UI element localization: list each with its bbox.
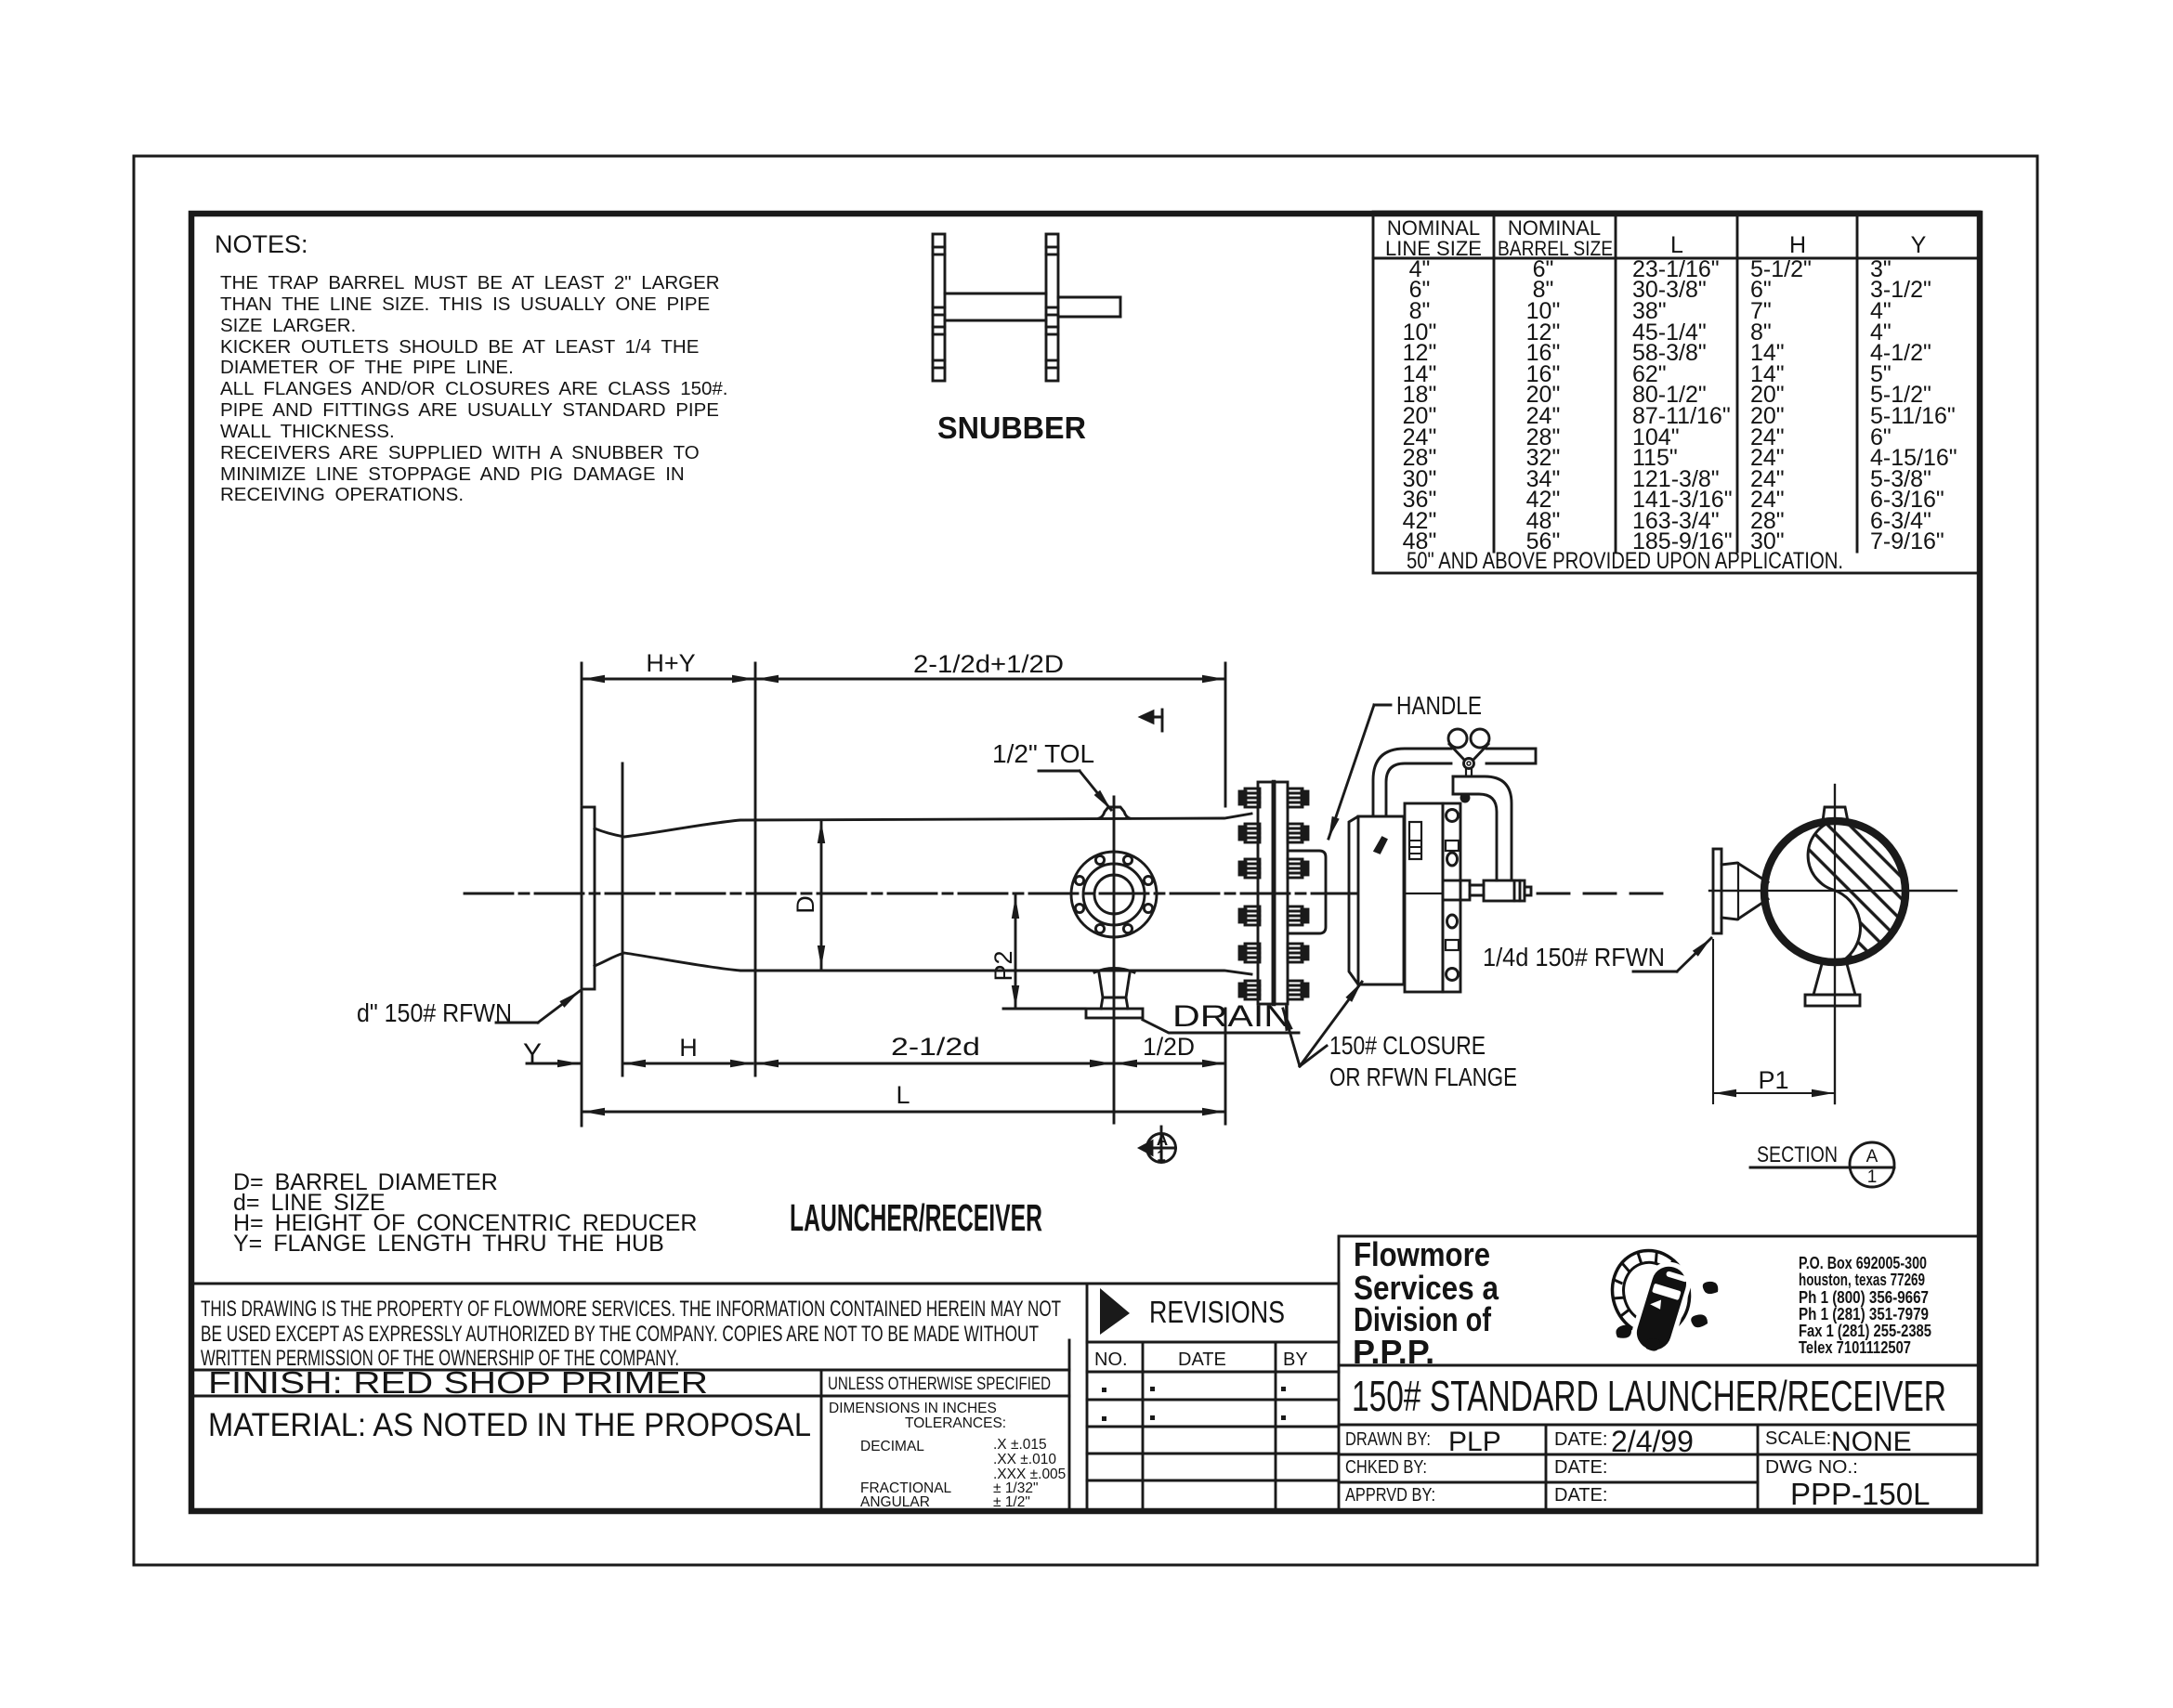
svg-text:Ph 1 (800) 356-9667: Ph 1 (800) 356-9667: [1799, 1288, 1929, 1307]
svg-text:.X ±.015: .X ±.015: [993, 1437, 1047, 1453]
svg-text:Y: Y: [1911, 232, 1927, 258]
svg-text:P2: P2: [989, 950, 1017, 981]
svg-text:P.P.P.: P.P.P.: [1353, 1333, 1434, 1371]
svg-text:Fax 1 (281) 255-2385: Fax 1 (281) 255-2385: [1799, 1322, 1931, 1340]
svg-text:OR RFWN FLANGE: OR RFWN FLANGE: [1329, 1063, 1517, 1091]
svg-text:RECEIVERS ARE SUPPLIED WITH A: RECEIVERS ARE SUPPLIED WITH A SNUBBER TO: [220, 442, 700, 463]
svg-text:ANGULAR: ANGULAR: [860, 1494, 930, 1510]
svg-text:DECIMAL: DECIMAL: [860, 1439, 924, 1454]
svg-text:BY: BY: [1283, 1349, 1308, 1370]
svg-text:ALL FLANGES AND/OR CLOSURES AR: ALL FLANGES AND/OR CLOSURES ARE CLASS 15…: [220, 378, 728, 399]
svg-text:SCALE:: SCALE:: [1765, 1428, 1831, 1449]
svg-text:PLP: PLP: [1448, 1427, 1501, 1457]
svg-text:2-1/2d+1/2D: 2-1/2d+1/2D: [913, 650, 1064, 678]
svg-text:BARREL SIZE: BARREL SIZE: [1498, 237, 1613, 260]
svg-text:LINE SIZE: LINE SIZE: [1385, 237, 1482, 260]
svg-text:Telex 7101112507: Telex 7101112507: [1799, 1338, 1911, 1357]
svg-text:DRAWN BY:: DRAWN BY:: [1345, 1429, 1431, 1450]
svg-text:MINIMIZE LINE STOPPAGE AND PIG: MINIMIZE LINE STOPPAGE AND PIG DAMAGE IN: [220, 463, 685, 485]
svg-text:D: D: [792, 895, 819, 914]
svg-text:APPRVD BY:: APPRVD BY:: [1345, 1485, 1435, 1506]
svg-text:NO.: NO.: [1094, 1349, 1128, 1370]
svg-text:7-9/16": 7-9/16": [1870, 528, 1944, 554]
svg-text:DATE:: DATE:: [1554, 1457, 1607, 1478]
svg-text:H: H: [679, 1034, 698, 1062]
svg-text:NOTES:: NOTES:: [215, 230, 308, 258]
svg-text:SIZE LARGER.: SIZE LARGER.: [220, 315, 356, 336]
svg-text:THAN THE LINE SIZE. THIS IS US: THAN THE LINE SIZE. THIS IS USUALLY ONE …: [220, 293, 710, 315]
svg-text:d" 150# RFWN: d" 150# RFWN: [357, 998, 512, 1027]
svg-text:THIS DRAWING IS THE PROPERTY O: THIS DRAWING IS THE PROPERTY OF FLOWMORE…: [201, 1297, 1061, 1322]
svg-text:Y= FLANGE LENGTH THRU THE HUB: Y= FLANGE LENGTH THRU THE HUB: [233, 1231, 664, 1257]
svg-text:1: 1: [1867, 1167, 1878, 1187]
svg-text:150# CLOSURE: 150# CLOSURE: [1329, 1031, 1486, 1060]
svg-text:CHKED BY:: CHKED BY:: [1345, 1457, 1427, 1478]
svg-text:L: L: [1670, 232, 1683, 258]
svg-text:HANDLE: HANDLE: [1396, 691, 1482, 720]
svg-text:RECEIVING OPERATIONS.: RECEIVING OPERATIONS.: [220, 484, 464, 505]
svg-text:KICKER OUTLETS SHOULD BE AT LE: KICKER OUTLETS SHOULD BE AT LEAST 1/4 TH…: [220, 336, 699, 358]
svg-text:NONE: NONE: [1831, 1427, 1912, 1457]
svg-text:Flowmore: Flowmore: [1354, 1235, 1490, 1273]
svg-text:.XX ±.010: .XX ±.010: [993, 1452, 1056, 1467]
svg-text:FINISH: RED SHOP PRIMER: FINISH: RED SHOP PRIMER: [208, 1365, 708, 1400]
svg-text:MATERIAL: AS NOTED IN THE PRO: MATERIAL: AS NOTED IN THE PROPOSAL: [208, 1407, 811, 1443]
svg-text:Y: Y: [523, 1038, 542, 1069]
svg-text:1/2D: 1/2D: [1143, 1033, 1195, 1061]
svg-text:PIPE AND FITTINGS ARE USUALLY: PIPE AND FITTINGS ARE USUALLY STANDARD P…: [220, 399, 719, 421]
svg-text:H+Y: H+Y: [646, 649, 695, 677]
svg-text:± 1/2": ± 1/2": [993, 1494, 1030, 1510]
svg-text:BE USED EXCEPT AS EXPRESSLY AU: BE USED EXCEPT AS EXPRESSLY AUTHORIZED B…: [201, 1322, 1039, 1347]
svg-text:H: H: [1789, 232, 1806, 258]
svg-text:DATE: DATE: [1178, 1349, 1226, 1370]
svg-text:PPP-150L: PPP-150L: [1790, 1477, 1930, 1511]
svg-text:DATE:: DATE:: [1554, 1429, 1607, 1450]
svg-text:DATE:: DATE:: [1554, 1485, 1607, 1506]
svg-text:UNLESS OTHERWISE SPECIFIED: UNLESS OTHERWISE SPECIFIED: [828, 1375, 1051, 1394]
svg-text:DIAMETER OF THE PIPE LINE.: DIAMETER OF THE PIPE LINE.: [220, 357, 514, 378]
svg-text:P.O. Box 692005-300: P.O. Box 692005-300: [1799, 1254, 1927, 1272]
svg-text:1: 1: [1157, 1147, 1165, 1165]
svg-text:SECTION: SECTION: [1757, 1142, 1838, 1167]
svg-text:1/4d 150# RFWN: 1/4d 150# RFWN: [1483, 943, 1665, 971]
svg-text:150# STANDARD LAUNCHER/RECEIVE: 150# STANDARD LAUNCHER/RECEIVER: [1352, 1372, 1946, 1420]
svg-text:P1: P1: [1758, 1066, 1788, 1094]
svg-text:2/4/99: 2/4/99: [1611, 1425, 1694, 1458]
svg-text:2-1/2d: 2-1/2d: [891, 1033, 980, 1061]
svg-text:TOLERANCES:: TOLERANCES:: [905, 1415, 1006, 1431]
svg-text:SNUBBER: SNUBBER: [937, 411, 1086, 445]
svg-text:L: L: [896, 1081, 910, 1109]
svg-text:LAUNCHER/RECEIVER: LAUNCHER/RECEIVER: [790, 1196, 1042, 1239]
svg-text:DWG NO.:: DWG NO.:: [1765, 1457, 1858, 1478]
svg-text:1/2" TOL: 1/2" TOL: [992, 739, 1094, 768]
svg-text:houston, texas 77269: houston, texas 77269: [1799, 1271, 1925, 1289]
svg-text:THE TRAP BARREL MUST BE AT LEA: THE TRAP BARREL MUST BE AT LEAST 2" LARG…: [220, 272, 720, 293]
svg-text:WALL THICKNESS.: WALL THICKNESS.: [220, 421, 395, 442]
svg-text:A: A: [1866, 1147, 1878, 1167]
svg-text:50" AND ABOVE PROVIDED UPON AP: 50" AND ABOVE PROVIDED UPON APPLICATION.: [1407, 548, 1843, 574]
svg-text:Ph 1 (281) 351-7979: Ph 1 (281) 351-7979: [1799, 1305, 1929, 1323]
svg-text:DIMENSIONS IN INCHES: DIMENSIONS IN INCHES: [829, 1401, 997, 1416]
svg-text:REVISIONS: REVISIONS: [1149, 1295, 1285, 1329]
